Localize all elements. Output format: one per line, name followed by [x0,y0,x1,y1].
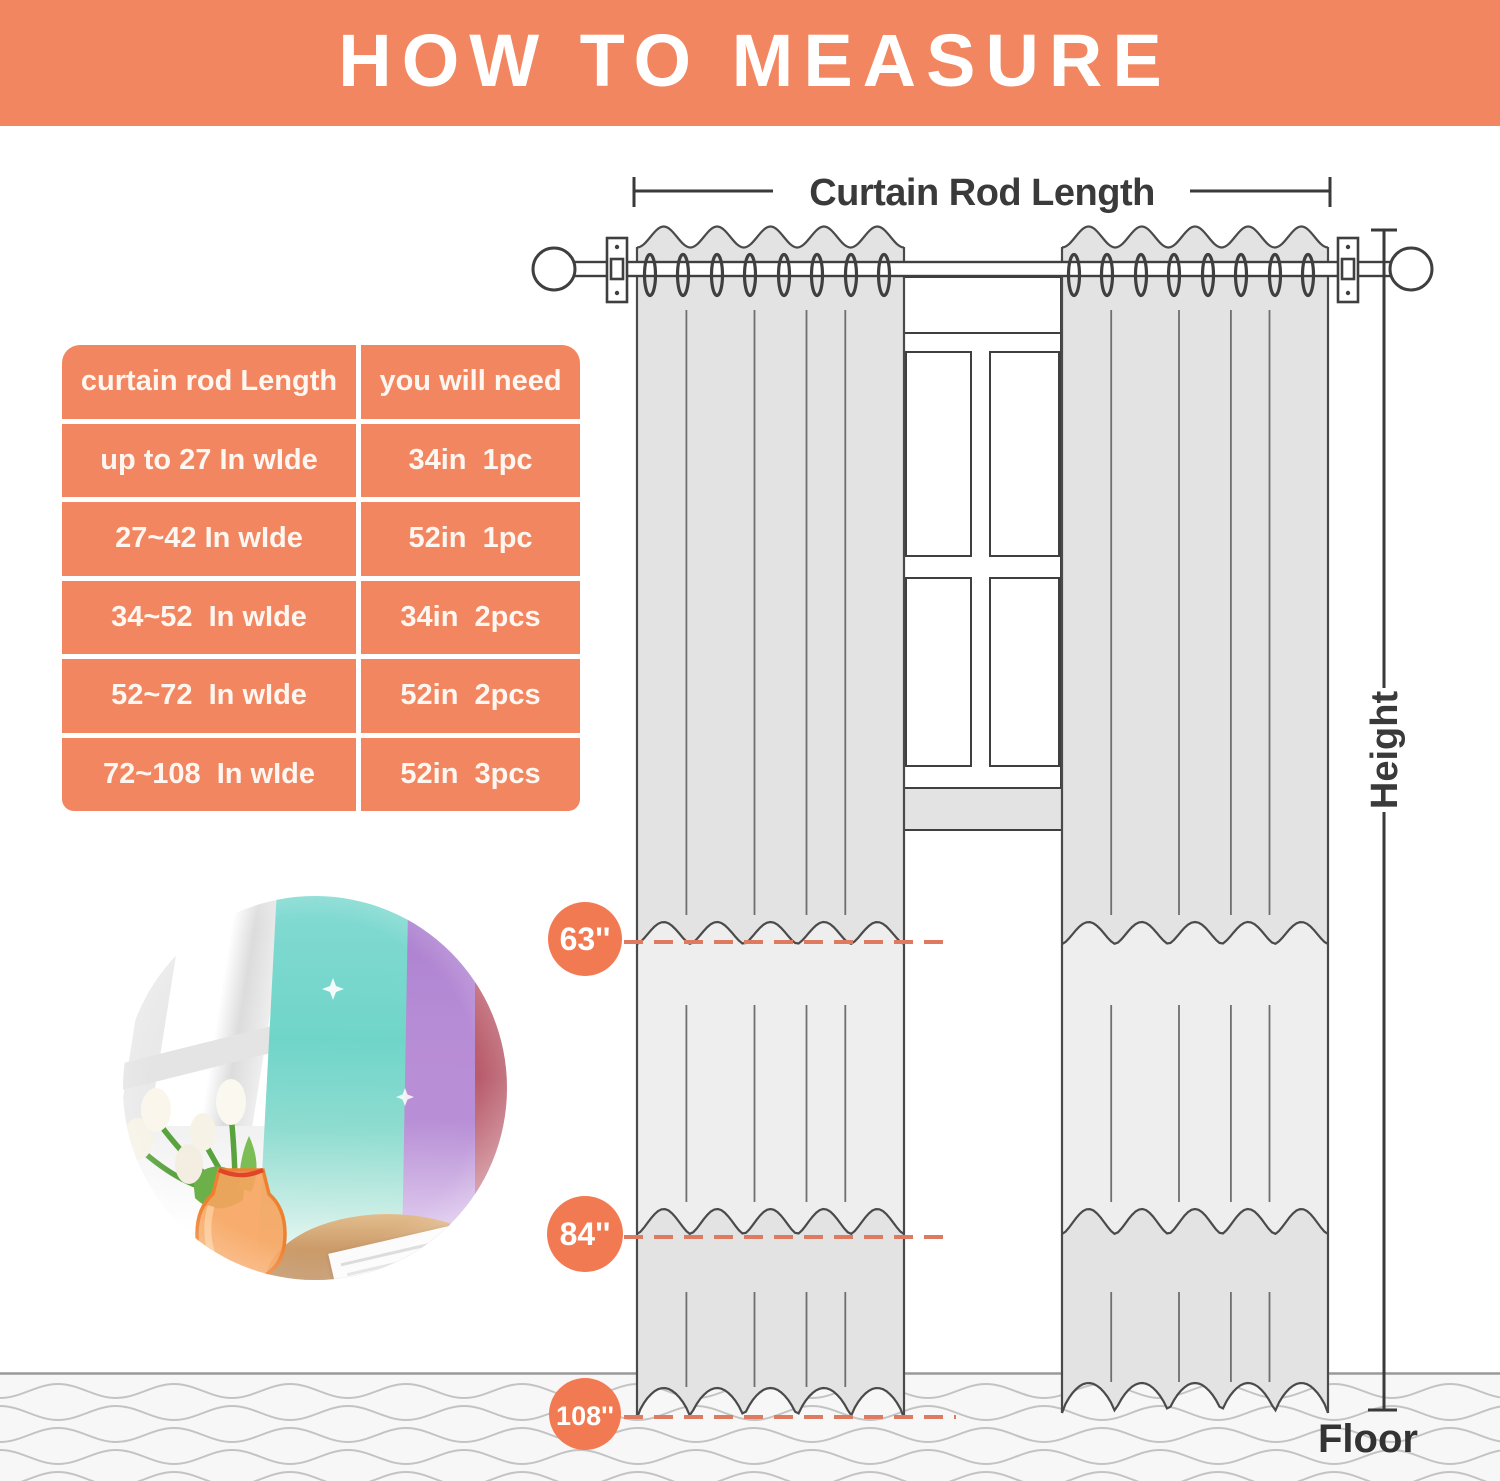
svg-text:Floor: Floor [1318,1417,1418,1461]
svg-text:84'': 84'' [560,1216,611,1252]
svg-text:Curtain Rod Length: Curtain Rod Length [809,172,1155,214]
svg-text:Height: Height [1364,691,1406,810]
svg-text:108'': 108'' [556,1401,614,1431]
svg-text:63'': 63'' [560,921,611,957]
